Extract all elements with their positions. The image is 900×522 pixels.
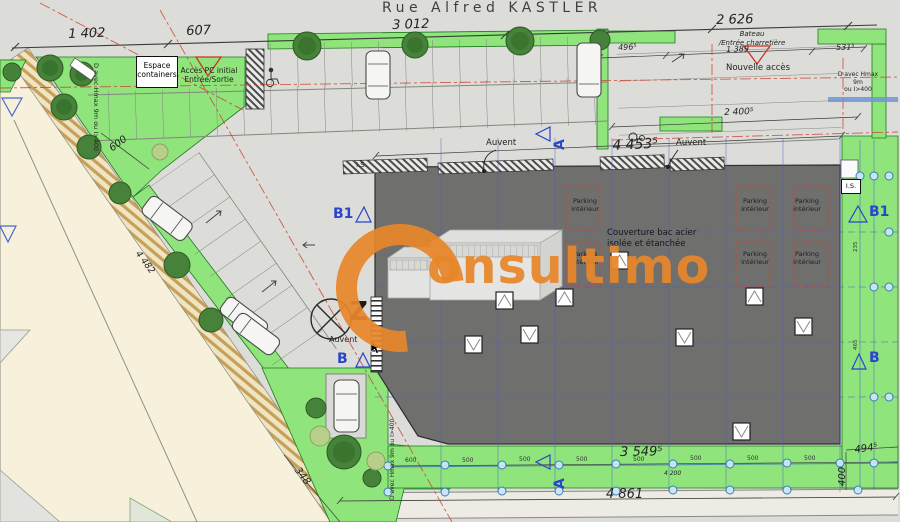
grid-tick: 500 <box>804 456 815 462</box>
dim-right-1: 496⁵ <box>618 43 637 52</box>
section-marker-a: A <box>553 139 567 150</box>
nouvelle-acces-label: Nouvelle accès <box>726 64 790 73</box>
section-marker-b1: B1 <box>333 207 353 221</box>
section-marker-b: B <box>869 351 880 365</box>
acces-pc-label: Accès PC initial Entrée/Sortie <box>180 66 238 85</box>
grid-tick: 500 <box>633 457 644 463</box>
street-name: Rue Alfred KASTLER <box>382 1 602 15</box>
section-marker-b: B <box>337 352 348 366</box>
espace-containers-box: Espace containers <box>136 56 178 88</box>
site-plan-drawing: Rue Alfred KASTLER 1 402 607 3 012 2 626… <box>0 0 900 522</box>
auvent-label: Auvent <box>676 139 706 148</box>
hmax-label-left: D avec Hmax 9m ou I>400 <box>93 63 100 151</box>
dim-top-left: 1 402 <box>68 27 106 41</box>
dim-top-right: 2 626 <box>716 13 754 27</box>
dim-street-front: 3 012 <box>392 18 430 32</box>
grid-tick: 500 <box>519 457 530 463</box>
dim-right-3: 531⁵ <box>836 43 855 52</box>
parking-interieur-label: Parkingintérieur <box>787 250 827 266</box>
dim-rear-sub: 4 200 <box>664 471 681 477</box>
grid-tick-side: 235 <box>854 242 860 253</box>
parking-interieur-label: Parkingintérieur <box>565 197 605 213</box>
grid-tick: 500 <box>462 458 473 464</box>
parking-interieur-label: Parkingintérieur <box>735 250 775 266</box>
dim-top-access: 607 <box>186 24 211 38</box>
espace-containers-label: Espace <box>144 61 171 70</box>
hmax-label-bottom: D avec Hmax 9m ou I>400 <box>390 419 396 500</box>
hmax-label-right: D avec Hmax 9m ou I>400 <box>834 71 882 94</box>
grid-tick: 500 <box>690 456 701 462</box>
dim-rear-total: 4 861 <box>606 488 643 501</box>
auvent-label: Auvent <box>329 336 357 344</box>
grid-tick: 600 <box>405 458 416 464</box>
section-marker-b1: B1 <box>869 205 889 219</box>
parking-interieur-label: Parkingintérieur <box>735 197 775 213</box>
highlight-segment <box>828 97 898 102</box>
section-marker-a: A <box>553 478 567 489</box>
grid-tick-side: 465 <box>854 340 860 351</box>
bateau-label: Bateau /Entrée charretière <box>716 30 788 48</box>
auvent-label: Auvent <box>486 139 516 148</box>
is-label: I.S. <box>356 162 367 169</box>
dim-building-front: 4 453⁵ <box>612 137 658 153</box>
grid-tick: 500 <box>576 457 587 463</box>
logo-consultimo-text: onsultimo <box>427 238 710 295</box>
containers-hatch <box>246 49 264 109</box>
parking-interieur-label: Parkingintérieur <box>787 197 827 213</box>
dim-rear-strip: 400 <box>838 467 848 486</box>
is-box: I.S. <box>841 179 861 194</box>
dim-right-depth: 2 400⁵ <box>724 108 754 118</box>
grid-tick: 500 <box>747 456 758 462</box>
